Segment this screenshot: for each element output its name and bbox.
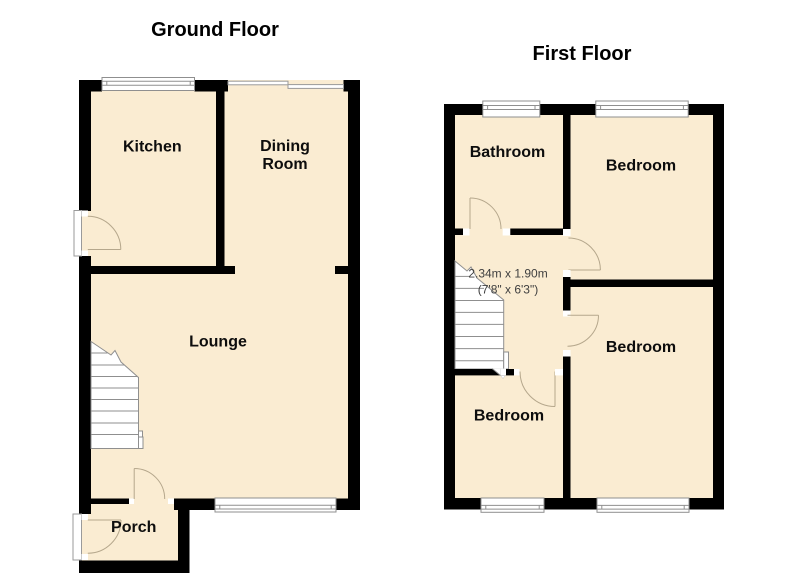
svg-text:Kitchen: Kitchen <box>123 139 182 156</box>
svg-text:Bathroom: Bathroom <box>470 144 546 161</box>
svg-text:Lounge: Lounge <box>189 333 247 350</box>
svg-text:Ground Floor: Ground Floor <box>151 19 279 41</box>
svg-text:Bedroom: Bedroom <box>474 408 544 425</box>
svg-text:(7'8" x 6'3"): (7'8" x 6'3") <box>478 283 538 297</box>
svg-text:Room: Room <box>262 156 307 173</box>
svg-text:Bedroom: Bedroom <box>606 339 676 356</box>
svg-text:Dining: Dining <box>260 138 310 155</box>
svg-text:Bedroom: Bedroom <box>606 157 676 174</box>
svg-text:2.34m x 1.90m: 2.34m x 1.90m <box>468 267 547 281</box>
svg-text:Porch: Porch <box>111 519 156 536</box>
svg-text:First Floor: First Floor <box>533 43 632 65</box>
